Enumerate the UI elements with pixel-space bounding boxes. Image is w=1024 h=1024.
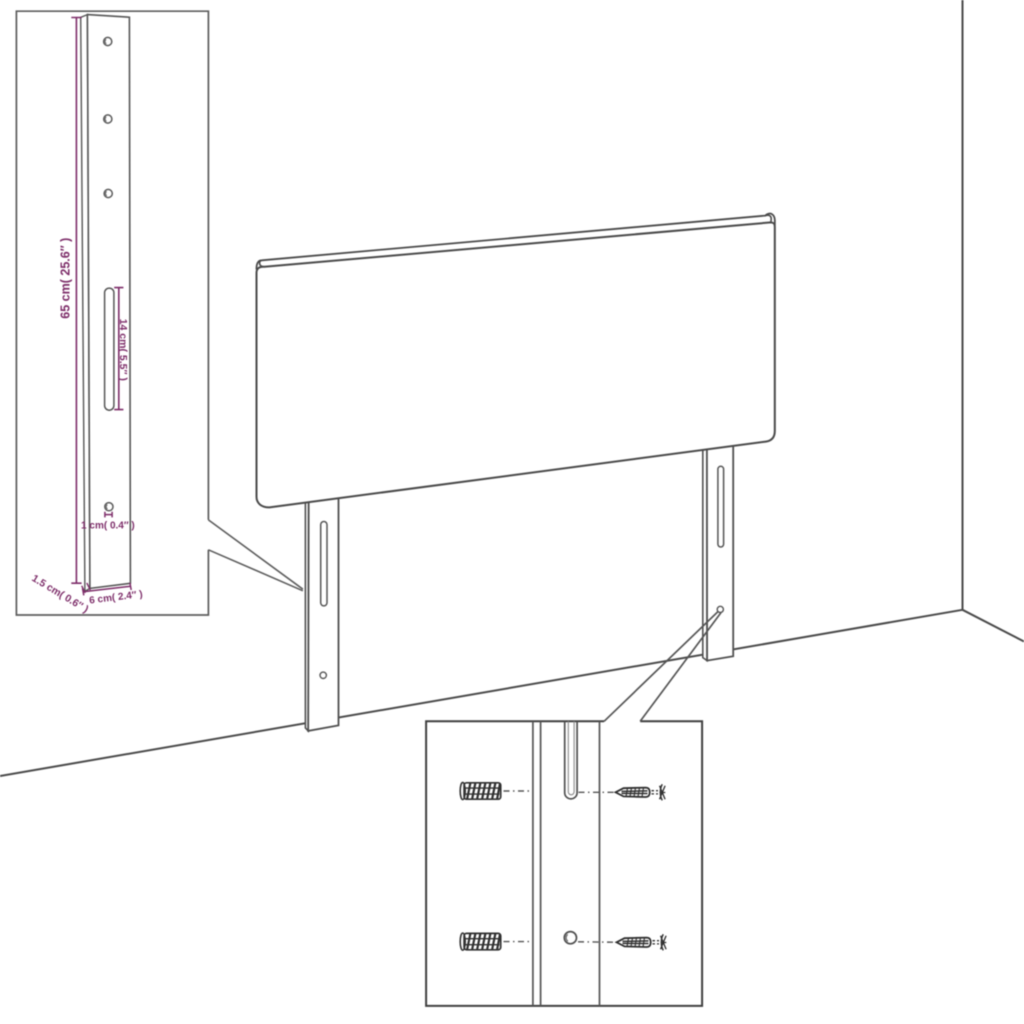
svg-text:1.5 cm( 0.6″ ): 1.5 cm( 0.6″ )	[30, 573, 90, 615]
svg-text:6 cm( 2.4″ ): 6 cm( 2.4″ )	[89, 589, 144, 606]
svg-text:65 cm( 25.6″ ): 65 cm( 25.6″ )	[58, 238, 72, 319]
svg-text:1 cm( 0.4″ ): 1 cm( 0.4″ )	[81, 521, 135, 532]
svg-text:14 cm( 5.5″ ): 14 cm( 5.5″ )	[117, 319, 129, 381]
